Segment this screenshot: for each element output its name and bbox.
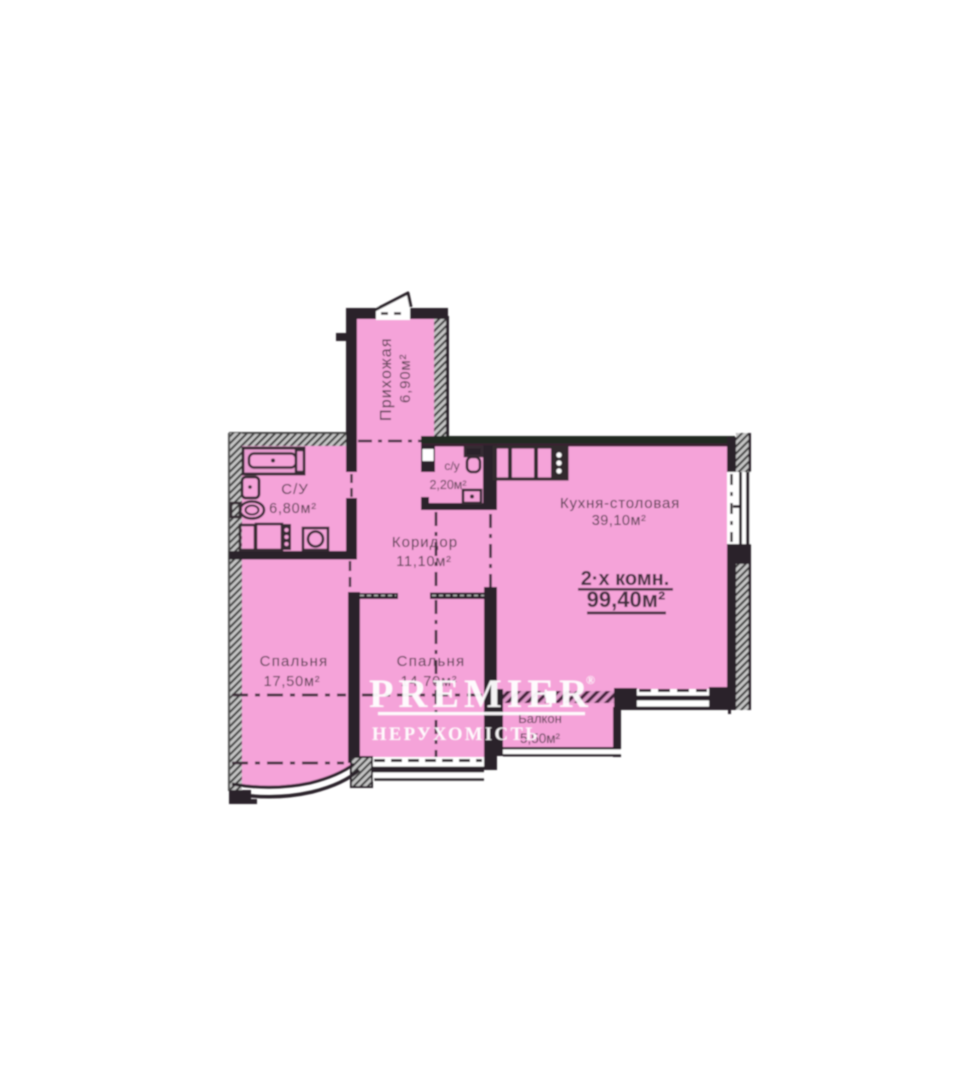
svg-text:17,50м²: 17,50м² bbox=[264, 674, 321, 690]
svg-text:С/У: С/У bbox=[281, 481, 309, 498]
svg-text:99,40м²: 99,40м² bbox=[587, 587, 666, 612]
svg-text:с/у: с/у bbox=[444, 459, 459, 473]
svg-text:PREMIER: PREMIER bbox=[369, 671, 593, 716]
svg-text:Кухня-столовая: Кухня-столовая bbox=[560, 495, 680, 512]
svg-text:Коридор: Коридор bbox=[392, 534, 458, 551]
svg-text:11,10м²: 11,10м² bbox=[396, 554, 452, 570]
svg-text:®: ® bbox=[586, 673, 595, 687]
svg-text:НЕРУХОМІСТЬ: НЕРУХОМІСТЬ bbox=[372, 725, 540, 745]
svg-text:Спальня: Спальня bbox=[260, 653, 329, 670]
svg-text:39,10м²: 39,10м² bbox=[592, 513, 647, 529]
svg-text:6,90м²: 6,90м² bbox=[397, 354, 414, 403]
svg-text:2,20м²: 2,20м² bbox=[429, 478, 466, 492]
svg-text:Спальня: Спальня bbox=[397, 653, 466, 670]
svg-text:6,80м²: 6,80м² bbox=[269, 501, 317, 517]
svg-text:Прихожая: Прихожая bbox=[378, 337, 395, 421]
